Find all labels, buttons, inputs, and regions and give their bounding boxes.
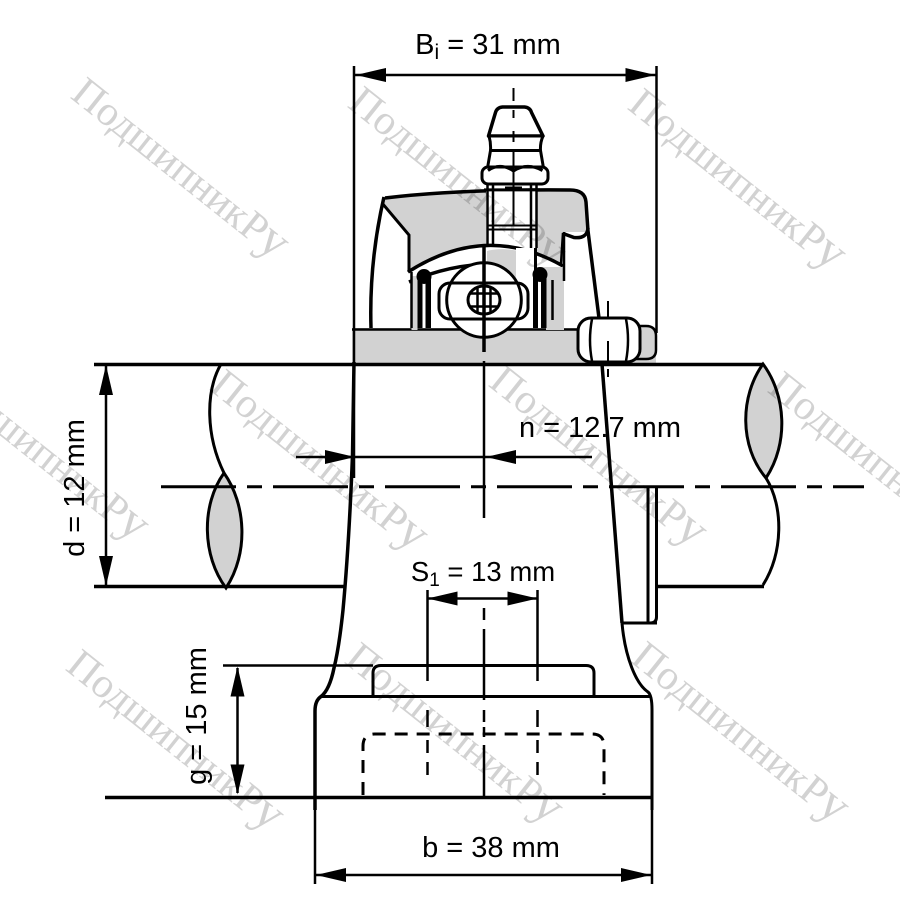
svg-text:b = 38 mm: b = 38 mm [422,832,560,864]
